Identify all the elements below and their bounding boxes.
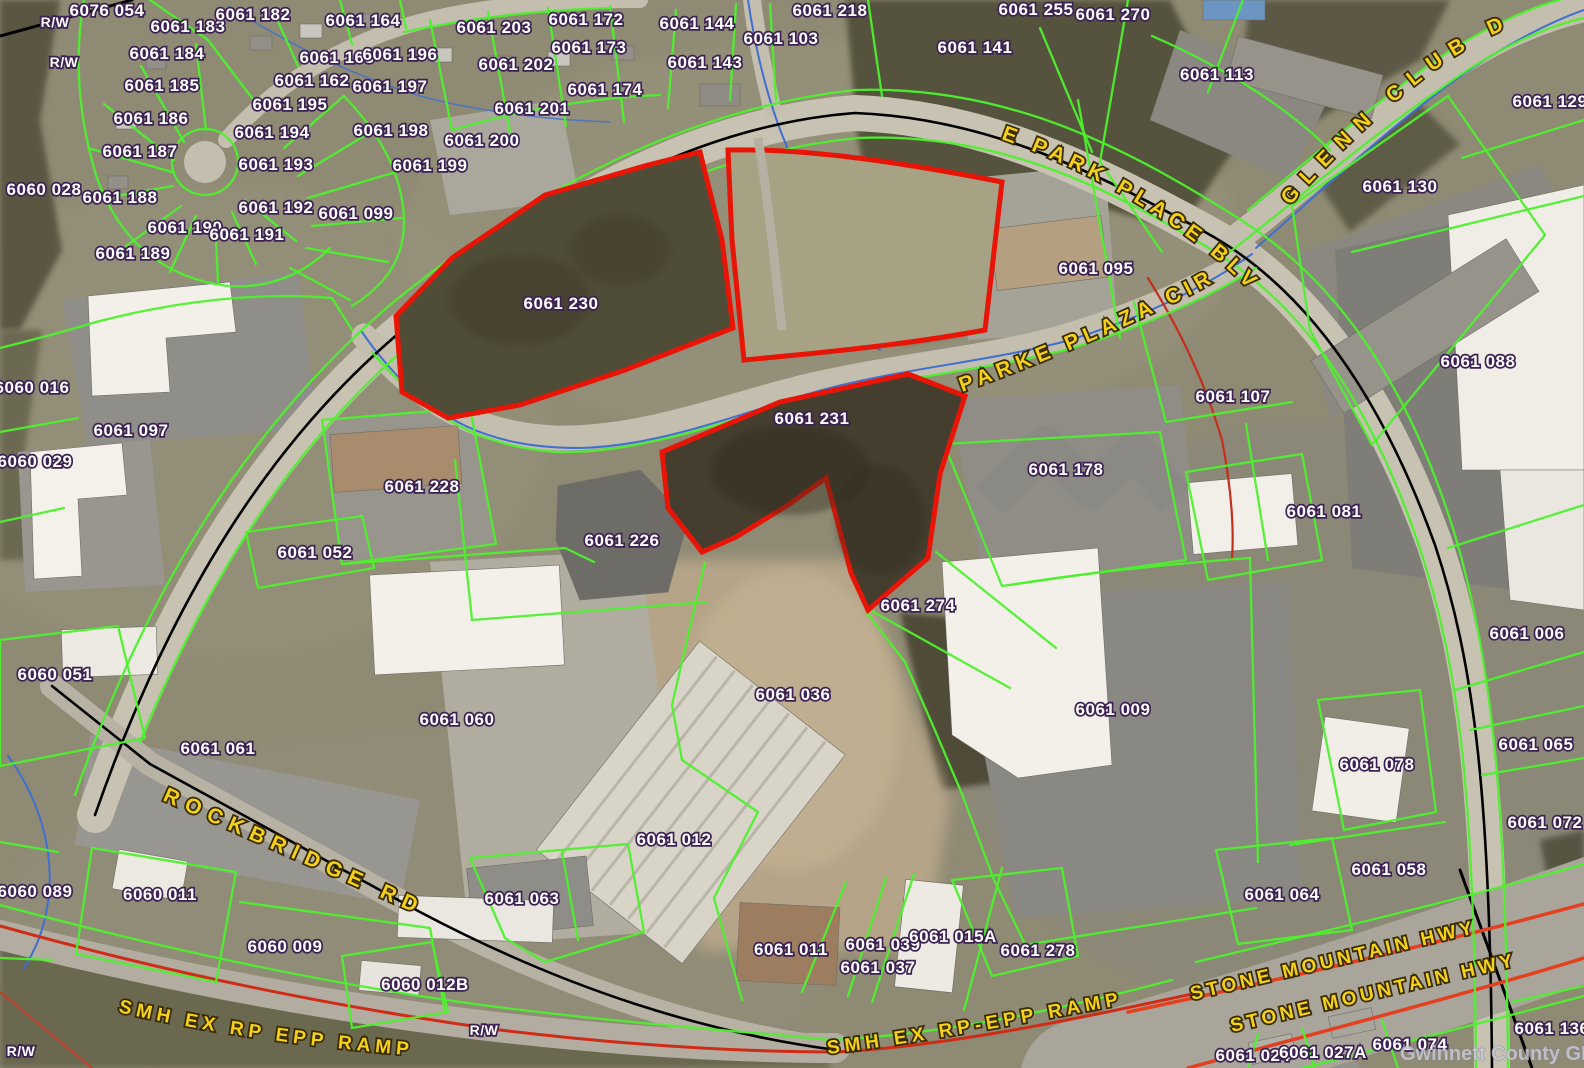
parcel-label: 6061 173 (552, 38, 627, 57)
parcel-label: 6061 186 (114, 109, 189, 128)
parcel-label: 6060 012B (381, 975, 469, 994)
parcel-label: 6061 192 (239, 198, 314, 217)
parcel-label: 6060 051 (18, 665, 93, 684)
parcel-label: 6061 164 (326, 11, 401, 30)
parcel-label: R/W (50, 54, 79, 70)
parcel-label: 6061 078 (1340, 755, 1415, 774)
parcel-label: 6061 187 (103, 142, 178, 161)
parcel-label: 6061 072 (1508, 813, 1583, 832)
parcel-label: 6061 063 (485, 889, 560, 908)
parcel-label: 6061 012 (637, 830, 712, 849)
parcel-label: 6061 060 (420, 710, 495, 729)
parcel-label: 6061 270 (1076, 5, 1151, 24)
parcel-label: 6060 009 (248, 937, 323, 956)
parcel-label: 6061 189 (96, 244, 171, 263)
parcel-label: 6061 143 (668, 53, 743, 72)
parcel-label: 6061 113 (1180, 65, 1254, 84)
parcel-label: 6061 197 (353, 77, 428, 96)
parcel-label: 6060 089 (0, 882, 72, 901)
parcel-label: 6061 196 (363, 45, 438, 64)
parcel-label: 6061 193 (239, 155, 314, 174)
parcel-label: 6060 028 (7, 180, 82, 199)
parcel-label: 6061 088 (1441, 352, 1516, 371)
parcel-label: 6061 231 (775, 409, 850, 428)
parcel-label: 6061 199 (393, 156, 468, 175)
parcel-label: 6061 188 (83, 188, 158, 207)
parcel-label: 6061 218 (793, 1, 868, 20)
parcel-label: 6061 226 (585, 531, 660, 550)
parcel-label: 6061 081 (1287, 502, 1362, 521)
parcel-label: 6061 011 (754, 940, 828, 959)
parcel-label: 6061 130 (1363, 177, 1438, 196)
parcel-label: R/W (7, 1043, 36, 1059)
parcel-label: 6061 036 (756, 685, 831, 704)
parcel-label: R/W (470, 1022, 499, 1038)
parcel-label: 6061 099 (319, 204, 394, 223)
parcel-label: 6061 202 (479, 55, 554, 74)
parcel-label: 6061 144 (660, 14, 735, 33)
parcel-label: 6061 200 (445, 131, 520, 150)
parcel-label: 6061 129 (1513, 92, 1584, 111)
parcel-label: 6061 195 (253, 95, 328, 114)
parcel-label: 6061 172 (549, 10, 624, 29)
parcel-label: 6061 203 (457, 18, 532, 37)
parcel-label: 6061 183 (151, 17, 226, 36)
parcel-label: 6061 006 (1490, 624, 1565, 643)
parcel-label: 6061 065 (1499, 735, 1574, 754)
parcel-label: 6061 185 (125, 76, 200, 95)
parcel-label: 6061 015A (909, 927, 997, 946)
parcel-label: 6061 162 (275, 71, 350, 90)
watermark: Gwinnett County GIS (1400, 1043, 1584, 1065)
parcel-label: 6061 095 (1059, 259, 1134, 278)
parcel-label: 6061 052 (278, 543, 353, 562)
parcel-label: 6061 058 (1352, 860, 1427, 879)
parcel-label: 6061 278 (1001, 941, 1076, 960)
parcel-label: 6061 228 (385, 477, 460, 496)
parcel-label: 6061 061 (181, 739, 256, 758)
parcel-label: 6061 009 (1076, 700, 1151, 719)
parcel-label: 6061 230 (524, 294, 599, 313)
parcel-label: 6061 178 (1029, 460, 1104, 479)
gis-map-canvas[interactable]: E PARK PLACE BLVDGLENN CLUB DRPARKE PLAZ… (0, 0, 1584, 1068)
parcel-label: 6061 103 (744, 29, 819, 48)
parcel-label: 6060 029 (0, 452, 72, 471)
parcel-label: 6061 107 (1196, 387, 1271, 406)
parcel-label: 6061 255 (999, 0, 1074, 19)
parcel-label: 6061 184 (130, 44, 205, 63)
parcel-label: 6061 201 (495, 99, 570, 118)
parcel-label: 6061 274 (881, 596, 956, 615)
parcel-label: 6061 136 (1515, 1019, 1584, 1038)
parcel-label: 6061 027A (1279, 1043, 1367, 1062)
parcel-label: 6076 054 (70, 1, 145, 20)
parcel-label: 6061 198 (354, 121, 429, 140)
parcel-label: R/W (41, 14, 70, 30)
parcel-label: 6061 037 (841, 958, 916, 977)
parcel-label: 6061 191 (210, 225, 285, 244)
parcel-label: 6061 141 (938, 38, 1013, 57)
parcel-label: 6061 064 (1245, 885, 1320, 904)
parcel-label: 6061 174 (568, 80, 643, 99)
parcel-label: 6060 011 (123, 885, 197, 904)
parcel-label: 6060 016 (0, 378, 69, 397)
parcel-label: 6061 182 (216, 5, 291, 24)
parcel-label: 6061 097 (94, 421, 169, 440)
parcel-label: 6061 194 (235, 123, 310, 142)
